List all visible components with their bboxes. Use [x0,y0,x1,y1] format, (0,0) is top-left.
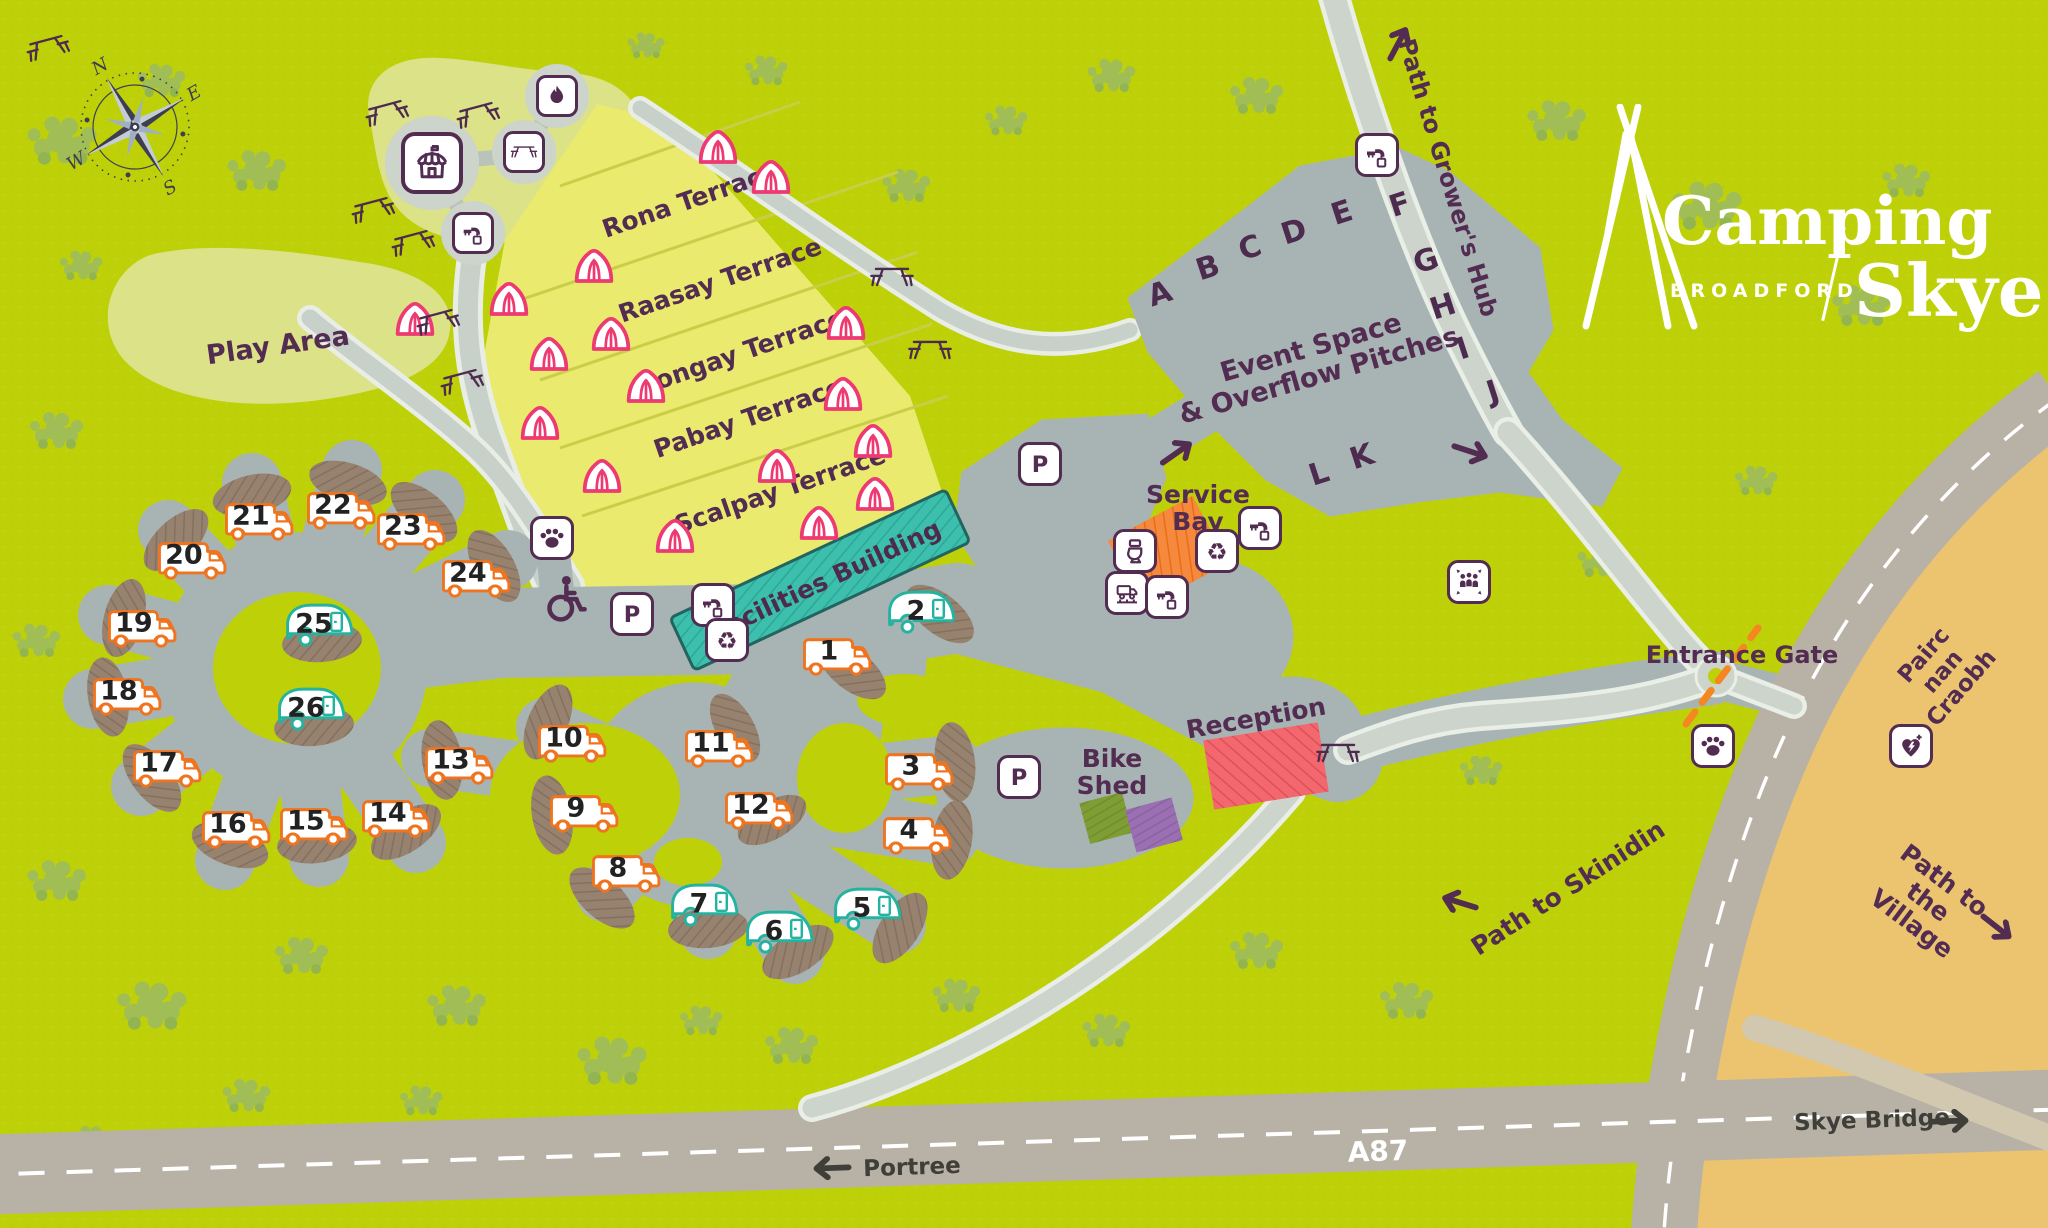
label-skye-bridge: Skye Bridge [1794,1106,1951,1136]
pitch-16: 16 [199,801,275,851]
pitch-11: 11 [682,720,758,770]
pitch-number: 21 [232,501,270,532]
paw-icon [530,516,574,560]
pitch-24: 24 [439,550,515,600]
pitch-number: 22 [314,490,352,521]
pitch-21: 21 [222,493,298,543]
picnic-table-icon [22,28,74,69]
parking-icon [997,755,1041,799]
event-pitch-letter-g: G [1409,241,1443,282]
label-play-area: Play Area [205,322,352,371]
label-bike-shed: Bike Shed [1077,745,1148,799]
pitch-4: 4 [880,807,956,857]
site-logo: Camping BROADFORD Skye [1570,86,2048,366]
pitch-9: 9 [547,785,623,835]
tent-icon [570,241,618,289]
event-pitch-letter-c: C [1234,228,1266,268]
pitch-number: 8 [608,853,627,884]
label-service-bay: Service Bay [1146,481,1250,535]
pitch-2: 2 [884,585,960,635]
pitch-3: 3 [882,743,958,793]
tent-icon [851,469,899,517]
recycle-icon [705,618,749,662]
pitch-number: 17 [140,748,178,779]
event-pitch-letter-e: E [1327,193,1357,233]
pitch-number: 4 [899,815,918,846]
label-reception: Reception [1184,692,1328,743]
pitch-number: 16 [209,809,247,840]
tent-icon [822,298,870,346]
label-path-to-skinidin: Path to Skinidin [1466,816,1669,961]
fire-icon [525,64,589,128]
defib-icon [1889,724,1933,768]
event-pitch-letter-l: L [1304,454,1333,493]
event-pitch-letter-a: A [1144,274,1177,314]
pitch-number: 26 [287,693,325,724]
pitch-number: 25 [295,609,333,640]
pitch-6: 6 [742,905,818,955]
pitch-10: 10 [535,715,611,765]
pitch-number: 20 [165,540,203,571]
tent-icon [525,329,573,377]
parking-icon [610,592,654,636]
pitch-number: 2 [907,596,926,627]
pitch-19: 19 [105,600,181,650]
picnic-table-icon [452,95,504,136]
picnic-table-icon [436,362,488,403]
pitch-number: 14 [369,798,407,829]
logo-word-skye: Skye [1854,248,2044,333]
tent-icon [849,416,897,464]
pitch-number: 13 [432,745,470,776]
label-portree: Portree [863,1154,961,1182]
tap-icon [1355,133,1399,177]
pitch-17: 17 [130,740,206,790]
parking-icon [1018,442,1062,486]
tent-icon [747,152,795,200]
label-path-to-the-village: Path to the Village [1856,834,2001,971]
pitch-number: 3 [901,751,920,782]
pitch-23: 23 [374,503,450,553]
event-entry-arrow [1153,430,1203,475]
pitch-number: 11 [692,728,730,759]
event-pitch-letter-j: J [1482,374,1503,411]
tent-icon [651,511,699,559]
skye-bridge-arrow [1930,1108,1975,1134]
campsite-map: { "logo": {"word1": "Camping", "word2": … [0,0,2048,1228]
picnic-table-icon [869,262,915,292]
tent-icon [516,398,564,446]
pitch-25: 25 [282,598,358,648]
label-a87: A87 [1347,1136,1409,1168]
picnic-table-icon [907,335,953,365]
pitch-5: 5 [830,882,906,932]
tent-icon [694,122,742,170]
pitch-number: 10 [545,723,583,754]
paw-icon [1691,724,1735,768]
toilet-icon [1113,529,1157,573]
pitch-26: 26 [274,682,350,732]
tent-icon [587,309,635,357]
picnic-table-icon [1315,738,1361,768]
assembly-icon [1447,560,1491,604]
pitch-13: 13 [422,737,498,787]
pitch-number: 9 [566,793,585,824]
service-icon [1105,571,1149,615]
label-entrance-gate: Entrance Gate [1646,643,1839,669]
tent-icon [485,274,533,322]
pitch-number: 1 [819,636,838,667]
tent-icon [578,451,626,499]
tent-icon [753,441,801,489]
pitch-number: 7 [690,889,709,920]
pitch-14: 14 [359,790,435,840]
pitch-number: 5 [853,893,872,924]
pitch-number: 23 [384,511,422,542]
event-pitch-letter-d: D [1277,212,1312,253]
tent-icon [795,498,843,546]
portree-arrow [808,1155,853,1181]
pitch-20: 20 [155,532,231,582]
picnic-icon [492,120,556,184]
event-pitch-letter-k: K [1346,437,1379,477]
tent-icon [819,369,867,417]
tent-icon [622,361,670,409]
pitch-8: 8 [589,845,665,895]
label-pairc-nan-craobh: Pairc nan Craobh [1880,608,2005,736]
event-exit-arrow [1447,434,1496,470]
recycle-icon [1195,529,1239,573]
event-pitch-letter-f: F [1385,185,1415,225]
label-event-space: Event Space & Overflow Pitches [1168,294,1462,430]
tap-icon [441,201,505,265]
pitch-15: 15 [277,798,353,848]
tap-icon [1238,506,1282,550]
picnic-table-icon [347,190,399,231]
pitch-number: 19 [115,608,153,639]
pitch-number: 6 [765,916,784,947]
label-path-to-growers-hub: Path to Grower's Hub [1392,36,1501,320]
pitch-number: 24 [449,558,487,589]
pitch-12: 12 [722,782,798,832]
pitch-22: 22 [304,482,380,532]
pitch-number: 12 [732,790,770,821]
picnic-table-icon [387,223,439,264]
pitch-number: 18 [100,676,138,707]
label-raasay-terrace: Raasay Terrace [615,233,825,328]
pitch-18: 18 [90,668,166,718]
pitch-number: 15 [287,806,325,837]
wheelchair-icon [536,571,590,625]
skinidin-arrow [1433,884,1482,920]
pitch-1: 1 [800,628,876,678]
pitch-7: 7 [667,878,743,928]
tap-icon [1145,575,1189,619]
event-pitch-letter-b: B [1192,248,1225,288]
